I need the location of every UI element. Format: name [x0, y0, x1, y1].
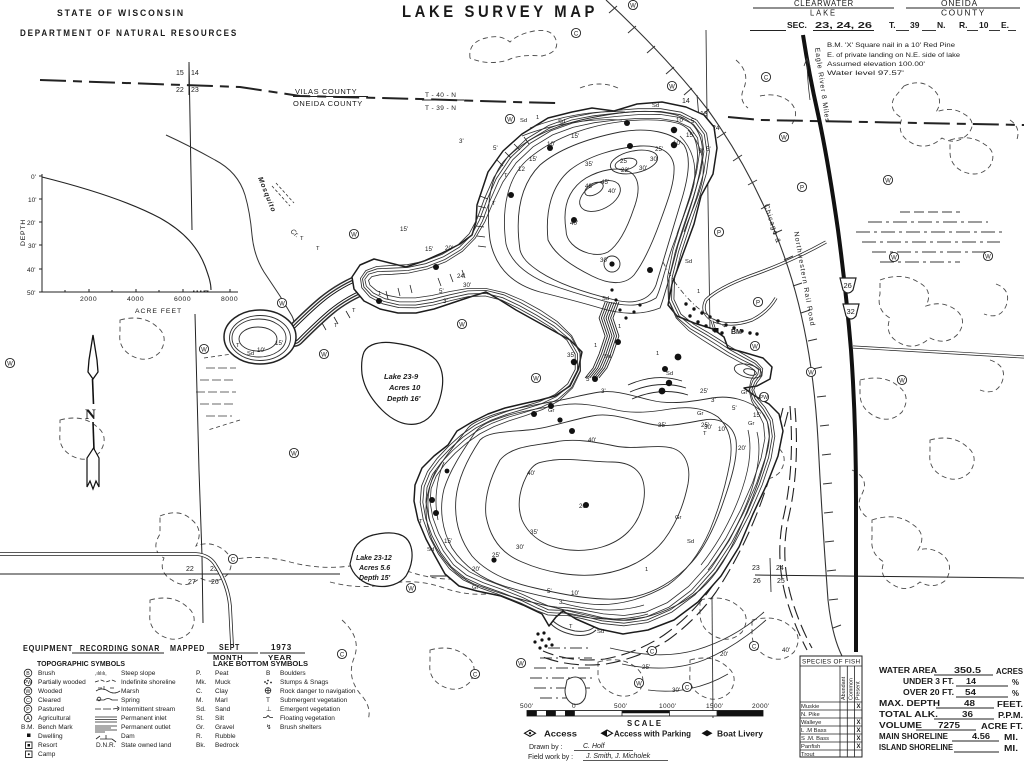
svg-text:10': 10' — [257, 347, 265, 354]
svg-text:P: P — [756, 301, 760, 307]
svg-text:X: X — [857, 736, 861, 742]
svg-text:3': 3' — [711, 397, 716, 404]
svg-text:SPECIES OF FISH: SPECIES OF FISH — [802, 659, 861, 666]
svg-text:Rubble: Rubble — [215, 733, 236, 740]
svg-text:C: C — [574, 32, 579, 38]
svg-text:5': 5' — [691, 118, 696, 125]
svg-text:20': 20' — [445, 245, 453, 252]
svg-text:Gravel: Gravel — [215, 724, 235, 731]
svg-text:Common: Common — [848, 678, 854, 700]
svg-text:1: 1 — [594, 343, 597, 349]
svg-text:Permanent inlet: Permanent inlet — [121, 715, 167, 722]
svg-text:1: 1 — [618, 324, 621, 330]
svg-text:Sd: Sd — [652, 103, 659, 109]
svg-text:3': 3' — [443, 298, 448, 305]
svg-text:⊥: ⊥ — [266, 706, 272, 713]
svg-text:Sand: Sand — [215, 706, 231, 713]
svg-text:SEC.: SEC. — [787, 20, 807, 30]
svg-text:35': 35' — [567, 352, 575, 359]
svg-text:%: % — [1012, 689, 1019, 698]
svg-text:15': 15' — [425, 246, 433, 253]
svg-text:ACRES: ACRES — [996, 667, 1023, 676]
svg-text:MAPPED: MAPPED — [170, 643, 205, 653]
svg-text:Depth 16': Depth 16' — [387, 394, 421, 403]
svg-text:Peat: Peat — [215, 670, 229, 677]
svg-text:5': 5' — [439, 288, 444, 295]
svg-text:Pastured: Pastured — [38, 706, 64, 713]
svg-text:ACRE FT.: ACRE FT. — [981, 722, 1023, 731]
svg-text:L .M Bass: L .M Bass — [801, 728, 827, 734]
svg-text:S .M. Bass: S .M. Bass — [801, 736, 829, 742]
svg-text:45': 45' — [601, 179, 609, 186]
svg-text:W: W — [885, 179, 891, 185]
svg-text:T: T — [352, 308, 356, 314]
svg-text:Cleared: Cleared — [38, 697, 61, 704]
svg-text:Sd: Sd — [520, 118, 527, 124]
svg-text:40': 40' — [588, 437, 596, 444]
svg-text:C. Holf: C. Holf — [583, 743, 605, 750]
svg-text:E.: E. — [1001, 20, 1009, 30]
svg-text:Present: Present — [856, 681, 862, 700]
svg-text:B.M.: B.M. — [21, 724, 35, 731]
svg-text:W: W — [507, 118, 513, 124]
svg-text:Emergent vegetation: Emergent vegetation — [280, 706, 340, 713]
svg-text:RECORDING SONAR: RECORDING SONAR — [80, 643, 160, 653]
svg-text:Camp: Camp — [38, 751, 56, 758]
svg-text:25': 25' — [700, 388, 708, 395]
svg-text:B: B — [266, 670, 270, 677]
svg-text:Access: Access — [544, 730, 578, 739]
svg-text:15': 15' — [444, 538, 452, 545]
svg-text:T - 39 - N: T - 39 - N — [425, 105, 456, 112]
svg-text:Gr: Gr — [748, 421, 755, 427]
svg-text:20': 20' — [720, 651, 728, 658]
svg-text:Agricultural: Agricultural — [38, 715, 71, 722]
svg-text:1500': 1500' — [706, 703, 724, 710]
svg-text:4.56: 4.56 — [972, 732, 991, 741]
svg-text:35': 35' — [530, 529, 538, 536]
svg-text:Gr: Gr — [675, 515, 682, 521]
svg-text:350.5: 350.5 — [954, 666, 982, 675]
svg-text:30': 30' — [639, 165, 647, 172]
svg-text:1: 1 — [536, 115, 539, 121]
svg-text:Boulders: Boulders — [280, 670, 306, 677]
svg-text:10': 10' — [718, 426, 726, 433]
svg-text:Water level 97.57': Water level 97.57' — [827, 70, 904, 77]
svg-text:C: C — [231, 558, 236, 564]
svg-text:Steep slope: Steep slope — [121, 670, 156, 677]
svg-text:M.: M. — [196, 697, 203, 704]
svg-text:Panfish: Panfish — [801, 744, 820, 750]
svg-text:ISLAND SHORELINE: ISLAND SHORELINE — [879, 743, 953, 752]
svg-text:R.: R. — [196, 733, 203, 740]
svg-text:C: C — [340, 653, 345, 659]
svg-text:0': 0' — [31, 174, 36, 181]
svg-text:Gr.: Gr. — [196, 724, 205, 731]
svg-text:T.: T. — [889, 20, 896, 30]
svg-text:Intermittent stream: Intermittent stream — [121, 706, 175, 713]
svg-text:Dwelling: Dwelling — [38, 733, 63, 740]
svg-text:22': 22' — [621, 167, 629, 174]
svg-text:0: 0 — [572, 703, 576, 710]
svg-text:W: W — [630, 4, 636, 10]
svg-text:W: W — [636, 682, 642, 688]
svg-text:Marl: Marl — [215, 697, 228, 704]
svg-text:W: W — [26, 689, 31, 695]
svg-text:T: T — [703, 431, 707, 437]
svg-text:C: C — [650, 650, 655, 656]
svg-text:Sd: Sd — [604, 354, 611, 360]
svg-text:STATE OF WISCONSIN: STATE OF WISCONSIN — [57, 8, 185, 18]
svg-text:J. Smith, J. Micholek: J. Smith, J. Micholek — [585, 753, 651, 760]
svg-text:X: X — [857, 704, 861, 710]
svg-text:ACRE FEET: ACRE FEET — [135, 308, 182, 315]
svg-text:23: 23 — [191, 87, 199, 94]
svg-text:54: 54 — [965, 688, 977, 697]
svg-text:25: 25 — [777, 578, 785, 585]
svg-text:20': 20' — [27, 220, 35, 227]
svg-text:22: 22 — [176, 87, 184, 94]
svg-text:PW: PW — [760, 395, 768, 401]
svg-text:W: W — [533, 377, 539, 383]
svg-text:10': 10' — [547, 141, 555, 148]
svg-text:W: W — [781, 136, 787, 142]
svg-text:W: W — [201, 348, 207, 354]
svg-text:Brush: Brush — [38, 670, 55, 677]
svg-text:Rock danger to navigation: Rock danger to navigation — [280, 688, 356, 695]
svg-text:3': 3' — [459, 138, 464, 145]
svg-text:BM: BM — [731, 329, 742, 336]
svg-text:15': 15' — [686, 132, 694, 139]
svg-text:Permanent outlet: Permanent outlet — [121, 724, 171, 731]
svg-text:SEPT: SEPT — [219, 642, 240, 652]
svg-text:26: 26 — [753, 578, 761, 585]
svg-text:T: T — [334, 323, 338, 329]
svg-text:State owned land: State owned land — [121, 742, 172, 749]
svg-text:3': 3' — [601, 388, 606, 395]
svg-text:Dam: Dam — [121, 733, 135, 740]
svg-text:10': 10' — [571, 590, 579, 597]
svg-text:20': 20' — [738, 445, 746, 452]
svg-text:W: W — [985, 255, 991, 261]
svg-text:30': 30' — [600, 257, 608, 264]
svg-text:Gr: Gr — [697, 411, 704, 417]
svg-text:Spring: Spring — [121, 697, 140, 704]
svg-text:30': 30' — [28, 243, 36, 250]
svg-text:5': 5' — [706, 146, 711, 153]
svg-text:Gr: Gr — [472, 585, 479, 591]
svg-text:MAIN SHORELINE: MAIN SHORELINE — [879, 732, 948, 741]
svg-text:20': 20' — [472, 566, 480, 573]
svg-text:C: C — [26, 698, 30, 704]
svg-text:DEPTH: DEPTH — [20, 219, 27, 246]
svg-text:T: T — [492, 201, 496, 207]
svg-text:39: 39 — [910, 20, 920, 30]
svg-text:1: 1 — [378, 291, 381, 297]
svg-text:P: P — [717, 231, 721, 237]
svg-text:25': 25' — [492, 552, 500, 559]
svg-text:Sd: Sd — [687, 539, 694, 545]
svg-text:Lake 23-9: Lake 23-9 — [384, 372, 419, 381]
svg-text:LAKE SURVEY MAP: LAKE SURVEY MAP — [402, 3, 598, 21]
svg-text:C: C — [764, 76, 769, 82]
svg-text:W: W — [408, 587, 414, 593]
svg-text:W: W — [899, 379, 905, 385]
svg-text:W: W — [279, 302, 285, 308]
svg-text:LAKE BOTTOM SYMBOLS: LAKE BOTTOM SYMBOLS — [213, 659, 308, 668]
svg-text:5': 5' — [732, 405, 737, 412]
svg-text:15': 15' — [529, 156, 537, 163]
svg-text:9': 9' — [699, 148, 704, 155]
svg-text:Bedrock: Bedrock — [215, 742, 240, 749]
svg-text:B.M. 'X' Square nail in a: B.M. 'X' Square nail in a 10' Red Pine — [827, 42, 955, 49]
svg-text:Depth 15': Depth 15' — [359, 575, 391, 582]
svg-text:Acres 10: Acres 10 — [388, 383, 421, 392]
svg-text:T: T — [316, 246, 320, 252]
svg-text:10: 10 — [979, 20, 989, 30]
svg-text:7275: 7275 — [938, 721, 961, 730]
svg-text:1973: 1973 — [271, 642, 292, 652]
svg-text:T: T — [569, 624, 573, 630]
svg-text:4000: 4000 — [127, 296, 144, 303]
svg-text:W: W — [752, 345, 758, 351]
svg-text:Wooded: Wooded — [38, 688, 62, 695]
svg-text:C.: C. — [196, 688, 203, 695]
svg-text:Sd: Sd — [602, 296, 609, 302]
svg-text:Bk.: Bk. — [196, 742, 206, 749]
svg-text:30': 30' — [463, 282, 471, 289]
svg-text:Sd.: Sd. — [196, 706, 206, 713]
svg-text:N. Pike: N. Pike — [801, 712, 820, 718]
svg-text:ONEIDA: ONEIDA — [941, 0, 978, 8]
svg-text:14: 14 — [682, 98, 690, 105]
svg-text:MAX. DEPTH: MAX. DEPTH — [879, 699, 940, 708]
svg-text:P.: P. — [196, 670, 201, 677]
svg-text:W: W — [891, 256, 897, 262]
svg-text:15': 15' — [571, 133, 579, 140]
svg-text:Indefinite shoreline: Indefinite shoreline — [121, 679, 176, 686]
svg-text:Clay: Clay — [215, 688, 229, 695]
svg-text:Access with Parking: Access with Parking — [614, 730, 691, 739]
svg-text:40': 40' — [570, 220, 578, 227]
svg-text:P.P.M.: P.P.M. — [998, 711, 1023, 720]
svg-text:Field work by :: Field work by : — [528, 754, 573, 761]
svg-text:St.: St. — [196, 715, 204, 722]
svg-text:N.: N. — [937, 20, 946, 30]
svg-text:15: 15 — [176, 70, 184, 77]
svg-text:Assumed elevation 100.00': Assumed elevation 100.00' — [827, 61, 925, 68]
svg-text:30': 30' — [650, 156, 658, 163]
svg-text:PW: PW — [24, 680, 32, 686]
svg-text:W: W — [321, 353, 327, 359]
svg-text:A: A — [26, 716, 30, 722]
svg-text:LAKE: LAKE — [810, 9, 837, 18]
svg-text:5': 5' — [586, 376, 591, 383]
svg-text:Partially wooded: Partially wooded — [38, 679, 86, 686]
svg-text:WATER AREA: WATER AREA — [879, 666, 937, 675]
svg-text:Muskie: Muskie — [801, 704, 819, 710]
svg-text:X: X — [857, 744, 861, 750]
svg-text:26: 26 — [844, 281, 852, 290]
svg-text:Abundant: Abundant — [841, 676, 847, 700]
svg-text:40': 40' — [608, 188, 616, 195]
svg-text:T: T — [266, 697, 270, 704]
svg-text:12: 12 — [518, 166, 525, 173]
svg-text:500': 500' — [520, 703, 534, 710]
svg-text:R.: R. — [959, 20, 968, 30]
svg-text:14: 14 — [966, 677, 977, 686]
svg-text:FEET.: FEET. — [997, 700, 1023, 709]
svg-text:T: T — [300, 236, 304, 242]
svg-text:Boat Livery: Boat Livery — [717, 730, 764, 739]
svg-text:X: X — [857, 728, 861, 734]
svg-text:3': 3' — [559, 599, 564, 606]
svg-text:%: % — [1012, 678, 1019, 687]
svg-text:Brush shelters: Brush shelters — [280, 724, 322, 731]
svg-text:CLEARWATER: CLEARWATER — [794, 0, 854, 8]
svg-text:Sd: Sd — [685, 259, 692, 265]
svg-text:27: 27 — [188, 579, 196, 586]
svg-text:8000: 8000 — [221, 296, 238, 303]
svg-text:30': 30' — [704, 424, 712, 431]
svg-text:36: 36 — [962, 710, 974, 719]
svg-text:Gr: Gr — [741, 390, 748, 396]
svg-text:W: W — [7, 362, 13, 368]
svg-text:23: 23 — [752, 565, 760, 572]
svg-text:C: C — [752, 645, 757, 651]
svg-text:50': 50' — [27, 290, 35, 297]
svg-text:Trout: Trout — [801, 752, 815, 758]
svg-text:E. of private landing on: E. of private landing on N.E. side of la… — [827, 52, 960, 59]
svg-text:ONEIDA COUNTY: ONEIDA COUNTY — [293, 99, 363, 108]
svg-text:10': 10' — [673, 140, 681, 147]
svg-text:VOLUME: VOLUME — [879, 721, 922, 730]
svg-text:Sd: Sd — [247, 351, 254, 357]
svg-text:Drawn by :: Drawn by : — [529, 744, 563, 751]
svg-text:T: T — [419, 519, 423, 525]
svg-text:D.N.R.: D.N.R. — [96, 742, 116, 749]
svg-text:32: 32 — [847, 307, 855, 316]
svg-text:Sd: Sd — [558, 119, 565, 125]
svg-text:MI.: MI. — [1004, 733, 1018, 742]
svg-text:N: N — [85, 407, 96, 423]
svg-text:W: W — [518, 662, 524, 668]
svg-text:1: 1 — [645, 567, 648, 573]
svg-text:1000': 1000' — [659, 703, 677, 710]
svg-text:S C A L E: S C A L E — [627, 719, 662, 728]
svg-text:DEPARTMENT OF NATURAL RESOU: DEPARTMENT OF NATURAL RESOURCES — [20, 28, 238, 38]
svg-text:P: P — [800, 186, 804, 192]
svg-text:W: W — [351, 233, 357, 239]
svg-text:Sd: Sd — [666, 371, 673, 377]
svg-text:VILAS COUNTY: VILAS COUNTY — [295, 87, 357, 96]
svg-text:26: 26 — [211, 579, 219, 586]
svg-text:Sd: Sd — [597, 629, 604, 635]
svg-text:W: W — [291, 452, 297, 458]
svg-text:25: 25 — [620, 158, 627, 165]
svg-text:40': 40' — [527, 470, 535, 477]
svg-text:1: 1 — [697, 289, 700, 295]
svg-text:5': 5' — [547, 588, 552, 595]
svg-text:W: W — [669, 85, 675, 91]
svg-text:40': 40' — [27, 267, 35, 274]
svg-text:10': 10' — [28, 197, 36, 204]
svg-text:6000: 6000 — [174, 296, 191, 303]
svg-text:Lake 23-12: Lake 23-12 — [356, 555, 392, 562]
svg-text:500': 500' — [614, 703, 628, 710]
svg-text:T - 40 - N: T - 40 - N — [425, 92, 456, 99]
svg-text:MI.: MI. — [1004, 744, 1018, 753]
svg-text:W: W — [459, 323, 465, 329]
svg-text:23, 24, 26: 23, 24, 26 — [815, 20, 872, 30]
svg-text:14: 14 — [191, 70, 199, 77]
svg-text:X: X — [857, 720, 861, 726]
svg-text:22: 22 — [186, 566, 194, 573]
svg-text:48': 48' — [585, 183, 593, 190]
svg-text:COUNTY: COUNTY — [941, 9, 986, 18]
svg-text:T: T — [504, 173, 508, 179]
svg-text:P: P — [26, 707, 30, 713]
svg-text:Submergent vegetation: Submergent vegetation — [280, 697, 348, 704]
svg-text:C: C — [685, 686, 690, 692]
svg-text:24': 24' — [457, 273, 465, 280]
svg-text:OVER 20 FT.: OVER 20 FT. — [903, 688, 954, 697]
svg-text:UNDER 3 FT.: UNDER 3 FT. — [903, 677, 954, 686]
svg-text:15': 15' — [275, 340, 283, 347]
svg-text:15': 15' — [753, 412, 761, 419]
svg-text:35': 35' — [585, 161, 593, 168]
svg-text:Stumps & Snags: Stumps & Snags — [280, 679, 329, 686]
svg-text:30': 30' — [672, 687, 680, 694]
svg-text:EQUIPMENT: EQUIPMENT — [23, 643, 73, 653]
svg-text:T: T — [236, 343, 240, 349]
svg-text:48: 48 — [964, 699, 976, 708]
svg-text:TOTAL ALK.: TOTAL ALK. — [879, 710, 938, 719]
svg-text:20': 20' — [579, 503, 587, 510]
svg-text:10': 10' — [676, 117, 684, 124]
svg-text:W: W — [808, 371, 814, 377]
svg-text:Acres 5.6: Acres 5.6 — [358, 565, 390, 572]
svg-text:Walleye: Walleye — [801, 720, 821, 726]
svg-text:Muck: Muck — [215, 679, 231, 686]
svg-text:1: 1 — [656, 351, 659, 357]
svg-text:Gr: Gr — [548, 408, 555, 414]
svg-text:Bench Mark: Bench Mark — [38, 724, 73, 731]
svg-text:25': 25' — [655, 146, 663, 153]
svg-text:↯: ↯ — [266, 723, 271, 731]
svg-text:B: B — [26, 671, 30, 677]
svg-text:TOPOGRAPHIC SYMBOLS: TOPOGRAPHIC SYMBOLS — [37, 659, 125, 668]
svg-text:40': 40' — [782, 647, 790, 654]
svg-text:Silt: Silt — [215, 715, 224, 722]
svg-text:Mk.: Mk. — [196, 679, 207, 686]
svg-text:Sd: Sd — [427, 547, 434, 553]
svg-text:15': 15' — [400, 226, 408, 233]
svg-text:,ılılılı,: ,ılılılı, — [95, 671, 107, 677]
svg-text:25': 25' — [642, 664, 650, 671]
svg-text:2000': 2000' — [752, 703, 770, 710]
svg-text:30': 30' — [516, 544, 524, 551]
svg-text:5': 5' — [493, 145, 498, 152]
svg-text:C: C — [473, 673, 478, 679]
svg-text:35': 35' — [658, 422, 666, 429]
svg-text:Floating vegetation: Floating vegetation — [280, 715, 335, 722]
svg-text:2000: 2000 — [80, 296, 97, 303]
svg-text:Resort: Resort — [38, 742, 57, 749]
svg-text:Marsh: Marsh — [121, 688, 139, 695]
